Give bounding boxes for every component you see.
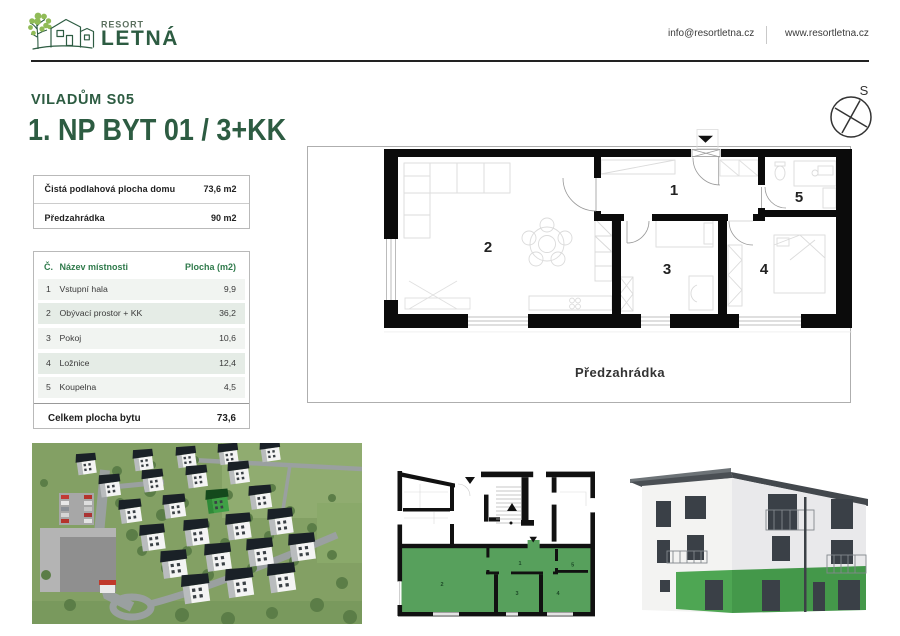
- svg-text:Předzahrádka: Předzahrádka: [575, 365, 665, 380]
- svg-text:4: 4: [760, 261, 769, 278]
- svg-text:1: 1: [518, 561, 521, 567]
- svg-text:2: 2: [484, 239, 492, 256]
- svg-text:S: S: [860, 83, 869, 98]
- svg-text:5: 5: [795, 189, 803, 206]
- svg-text:5: 5: [571, 563, 574, 569]
- svg-text:3: 3: [663, 261, 671, 278]
- svg-text:2: 2: [440, 582, 443, 588]
- svg-text:3: 3: [515, 591, 518, 597]
- svg-text:1: 1: [670, 182, 678, 199]
